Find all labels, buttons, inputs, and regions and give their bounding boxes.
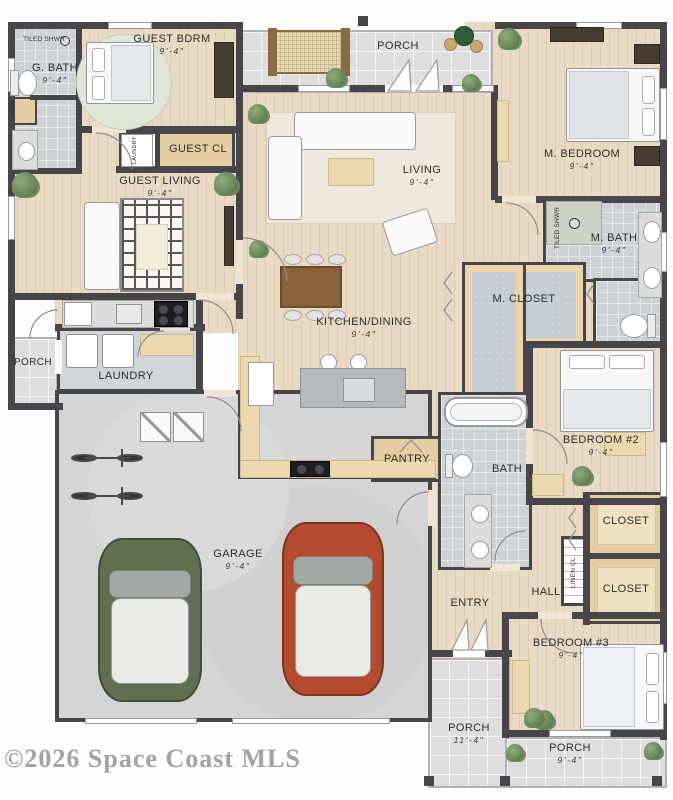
storage-box xyxy=(140,412,171,442)
mls-watermark: ©2026 Space Coast MLS xyxy=(4,744,301,774)
car-roof xyxy=(111,598,189,684)
sink-icon xyxy=(643,267,661,289)
porch-br-label: PORCH9'-4" xyxy=(549,742,591,765)
toilet-bowl xyxy=(452,454,473,478)
sink-icon xyxy=(471,505,489,523)
room-name: M. CLOSET xyxy=(493,293,556,305)
room-dim: 9'-4" xyxy=(213,561,262,571)
door-opening xyxy=(204,390,236,397)
accent-rug xyxy=(532,474,564,496)
room-name: CLOSET xyxy=(603,583,649,595)
plant-icon xyxy=(248,104,268,124)
bathtub-icon xyxy=(444,397,528,427)
wall xyxy=(30,95,82,100)
toilet-icon xyxy=(618,312,656,338)
room-dim: 9'-4" xyxy=(32,75,78,85)
room-name: PANTRY xyxy=(384,453,430,465)
bath-label: BATH xyxy=(492,463,522,476)
bedroom2-bed xyxy=(560,350,654,432)
room-name: LAUNDRY xyxy=(98,370,153,382)
guest-living-label: GUEST LIVING9'-4" xyxy=(119,175,201,198)
room-dim: 9'-4" xyxy=(563,447,639,457)
room-name: G. BATH xyxy=(32,62,78,74)
room-dim: 9'-4" xyxy=(316,329,411,339)
tiled-shwr-guest-label: TILED SHWR xyxy=(23,36,65,44)
room-dim: 9'-4" xyxy=(544,161,620,171)
wall xyxy=(583,492,590,625)
plant-icon xyxy=(644,742,662,760)
entry-label: ENTRY xyxy=(450,597,489,610)
blanket xyxy=(563,389,651,429)
pillow xyxy=(642,108,655,136)
window xyxy=(108,22,152,29)
room-name: PORCH xyxy=(14,357,52,368)
room-name: LINEN CL xyxy=(570,558,577,589)
red-car xyxy=(282,522,384,696)
door-opening xyxy=(236,240,243,284)
dresser xyxy=(214,42,234,98)
sink-icon xyxy=(18,142,35,161)
storage-box xyxy=(173,412,204,442)
room-dim: 9'-4" xyxy=(403,177,441,187)
vanity xyxy=(12,130,38,170)
room-name: GUEST CL xyxy=(169,143,227,155)
door-opening xyxy=(196,293,234,300)
master-bed xyxy=(566,68,660,142)
closet-b-label: CLOSET xyxy=(603,583,649,596)
room-name: TILED SHWR xyxy=(554,207,561,249)
dining-chair xyxy=(328,254,346,265)
room-name: TILED SHWR xyxy=(23,36,65,43)
laundry-counter xyxy=(140,334,194,356)
pillow xyxy=(92,76,105,100)
wall xyxy=(502,612,509,738)
porch-post xyxy=(424,776,434,786)
plant-icon xyxy=(12,172,38,198)
porch-top-label: PORCH xyxy=(377,40,419,53)
m-bath-label: M. BATH9'-4" xyxy=(591,232,638,255)
plant-icon xyxy=(326,68,346,88)
room-name: M. BEDROOM xyxy=(544,148,620,160)
vanity xyxy=(464,494,492,568)
french-door-opening xyxy=(385,85,443,92)
coffee-table xyxy=(328,158,374,186)
closet-a-label: CLOSET xyxy=(603,515,649,528)
hall-label: HALL xyxy=(531,586,560,599)
front-door-opening xyxy=(453,650,485,657)
wall xyxy=(526,341,667,348)
toilet-bowl xyxy=(620,314,648,338)
garage-door xyxy=(232,718,390,724)
shower-head-icon xyxy=(569,218,580,229)
room-name: BATH xyxy=(492,463,522,475)
tv-console xyxy=(224,206,234,266)
bedroom2-label: BEDROOM #29'-4" xyxy=(563,434,639,457)
room-dim: 9'-4" xyxy=(133,46,210,56)
bedroom3-label: BEDROOM #39'-4" xyxy=(533,637,609,660)
wall xyxy=(196,300,203,392)
door-opening xyxy=(428,490,436,526)
blanket xyxy=(569,71,629,139)
room-dim: 9'-4" xyxy=(549,755,591,765)
door-opening xyxy=(526,428,533,464)
room-name: HALL xyxy=(531,586,560,598)
living-label: LIVING9'-4" xyxy=(403,164,441,187)
door-opening xyxy=(502,196,536,203)
kitchen-sink-icon xyxy=(116,304,142,324)
plant-icon xyxy=(249,240,267,258)
dresser xyxy=(550,27,604,42)
porch-bench xyxy=(268,28,277,76)
car-roof xyxy=(295,585,371,677)
guest-bath-label: G. BATH9'-4" xyxy=(32,62,78,85)
porch-post xyxy=(652,776,662,786)
pillow xyxy=(646,653,659,685)
linen-cl-label: LINEN CL xyxy=(570,545,578,601)
bathtub-inner xyxy=(450,403,522,421)
garage-door xyxy=(85,718,197,724)
sofa xyxy=(84,202,120,290)
room-dim: 9'-4" xyxy=(591,245,638,255)
burner xyxy=(159,305,168,314)
porch-post xyxy=(358,16,368,26)
dining-chair xyxy=(284,254,302,265)
room-name: PORCH xyxy=(377,40,419,52)
pantry-label: PANTRY xyxy=(384,453,430,466)
plant-icon xyxy=(462,74,480,92)
pillow xyxy=(92,48,105,72)
room-dim: 9'-4" xyxy=(533,650,609,660)
burner xyxy=(315,465,324,474)
laundry-label: LAUNDRY xyxy=(98,370,153,383)
window xyxy=(660,442,667,497)
sofa xyxy=(268,136,302,220)
window xyxy=(549,730,611,737)
room-name: BEDROOM #2 xyxy=(563,434,639,446)
vanity xyxy=(638,212,662,298)
door-opening xyxy=(538,612,572,619)
burner xyxy=(174,316,183,325)
pillow xyxy=(646,691,659,723)
room-dim: 11'-4" xyxy=(448,735,490,745)
room-name: GUEST BDRM xyxy=(133,33,210,45)
wall xyxy=(8,403,63,410)
porch-bl-label: PORCH11'-4" xyxy=(448,722,490,745)
room-name: GUEST LIVING xyxy=(119,175,201,187)
room-name: LIVING xyxy=(403,164,441,176)
car-windshield xyxy=(293,556,373,585)
guest-closet-label: GUEST CL xyxy=(169,143,227,156)
room-name: LINEN xyxy=(9,101,16,121)
plant-icon xyxy=(572,466,592,486)
garage-label: GARAGE9'-4" xyxy=(213,548,262,571)
window xyxy=(660,88,667,140)
room-porch-left xyxy=(8,337,58,407)
room-name: GARAGE xyxy=(213,548,262,560)
porch-left-label: PORCH xyxy=(14,357,52,369)
door-opening xyxy=(490,564,520,571)
guest-laundry-label: LAUNDRY xyxy=(132,138,139,164)
m-closet-label: M. CLOSET xyxy=(493,293,556,306)
room-name: PORCH xyxy=(448,722,490,734)
pillow xyxy=(642,76,655,104)
m-bedroom-label: M. BEDROOM9'-4" xyxy=(544,148,620,171)
room-name: CLOSET xyxy=(603,515,649,527)
sink-icon xyxy=(471,541,489,559)
linen-guest-label: LINEN xyxy=(9,98,17,124)
room-name: KITCHEN/DINING xyxy=(316,316,411,328)
dryer-icon xyxy=(102,334,134,368)
kitchen-island xyxy=(300,368,406,408)
kitchen-dining-label: KITCHEN/DINING9'-4" xyxy=(316,316,411,339)
wall xyxy=(526,498,667,505)
room-dim: 9'-4" xyxy=(119,188,201,198)
plant-icon xyxy=(498,28,520,50)
car-windshield xyxy=(109,570,191,598)
porch-bench xyxy=(341,28,350,76)
dining-chair xyxy=(284,310,302,321)
porch-post xyxy=(500,776,510,786)
guest-bdrm-label: GUEST BDRM9'-4" xyxy=(133,33,210,56)
window xyxy=(298,85,350,92)
room-name: LAUNDRY xyxy=(132,136,138,164)
island-sink-icon xyxy=(343,378,375,402)
dining-table xyxy=(280,266,342,308)
window xyxy=(8,196,15,240)
plant-icon xyxy=(506,744,524,762)
plant-icon xyxy=(214,172,238,196)
pillow xyxy=(569,355,605,369)
tiled-shwr-m-label: TILED SHWR xyxy=(554,204,562,252)
burner xyxy=(159,316,168,325)
washer-icon xyxy=(66,334,98,368)
sofa xyxy=(294,112,416,150)
dining-chair xyxy=(306,254,324,265)
wall xyxy=(502,612,667,619)
pillow xyxy=(609,355,645,369)
cooktop-icon xyxy=(154,301,188,327)
refrigerator xyxy=(64,302,92,326)
room-name: ENTRY xyxy=(450,597,489,609)
room-name: BEDROOM #3 xyxy=(533,637,609,649)
room-name: PORCH xyxy=(549,742,591,754)
plant-icon xyxy=(524,708,544,728)
cooktop-icon xyxy=(290,461,330,477)
desk xyxy=(512,660,530,714)
refrigerator xyxy=(248,362,274,406)
console-table xyxy=(497,100,509,162)
nightstand xyxy=(634,146,660,166)
burner xyxy=(174,305,183,314)
green-car xyxy=(98,538,202,702)
burner xyxy=(297,465,306,474)
toilet-tank xyxy=(647,314,656,338)
bistro-chair xyxy=(470,40,483,53)
sink-icon xyxy=(643,221,661,243)
room-name: M. BATH xyxy=(591,232,638,244)
bistro-chair xyxy=(444,38,457,51)
toilet-icon xyxy=(445,452,473,478)
floor-plan: PORCH GUEST BDRM9'-4" TILED SHWR G. BATH… xyxy=(0,0,673,800)
rug-center xyxy=(136,224,168,270)
nightstand xyxy=(634,44,660,64)
door-opening xyxy=(55,340,62,374)
